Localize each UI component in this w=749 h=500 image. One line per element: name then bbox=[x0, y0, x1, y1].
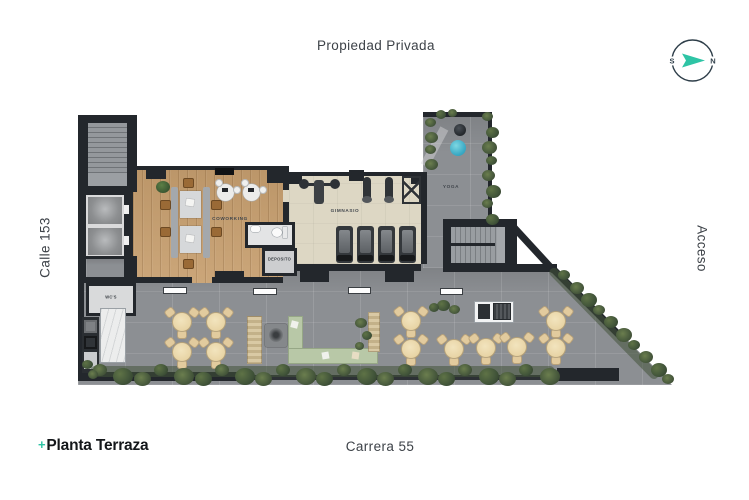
room-label-wc: WC'S bbox=[94, 296, 128, 300]
bush bbox=[425, 159, 438, 170]
column bbox=[146, 166, 166, 179]
treadmill-console bbox=[400, 255, 415, 261]
planter-bar-bottom-right bbox=[557, 368, 619, 381]
bush bbox=[418, 368, 438, 385]
spin-bike-seat bbox=[384, 196, 394, 203]
street-label-left: Calle 153 bbox=[38, 213, 53, 283]
bush bbox=[235, 368, 255, 385]
dining-table bbox=[206, 342, 226, 362]
bush bbox=[482, 170, 495, 181]
elevator-cab bbox=[88, 197, 122, 224]
bush bbox=[436, 110, 446, 119]
bush bbox=[362, 331, 372, 340]
bush bbox=[482, 199, 493, 208]
dining-set bbox=[164, 333, 200, 371]
sofa-bench bbox=[171, 187, 178, 258]
bush bbox=[215, 364, 229, 376]
compass-letter-s: S bbox=[669, 57, 674, 66]
street-label-right: Acceso bbox=[695, 219, 710, 279]
wood-chair bbox=[211, 200, 222, 210]
bush bbox=[337, 364, 351, 376]
compass-arrow-icon bbox=[682, 54, 705, 68]
skylight-bar bbox=[348, 287, 371, 294]
dining-table bbox=[444, 339, 464, 359]
toilet-tank bbox=[283, 227, 287, 238]
skylight-bar bbox=[253, 288, 277, 295]
fire-pit-bowl bbox=[269, 328, 283, 342]
compass-icon: S N bbox=[664, 32, 721, 89]
skylight-bar bbox=[163, 287, 187, 294]
wood-chair bbox=[211, 227, 222, 237]
stairwell-left-treads bbox=[88, 123, 127, 173]
treadmill-deck bbox=[402, 230, 413, 253]
gym-bench bbox=[314, 180, 324, 204]
treadmill-deck bbox=[360, 230, 371, 253]
bush bbox=[82, 360, 93, 369]
bush bbox=[558, 270, 570, 280]
planter-box bbox=[300, 271, 329, 282]
bush bbox=[448, 109, 457, 117]
cafe-chair bbox=[259, 186, 267, 194]
wood-chair bbox=[183, 178, 194, 188]
dining-table bbox=[172, 312, 192, 332]
pouf-dark bbox=[454, 124, 466, 136]
treadmill bbox=[378, 226, 395, 263]
bush bbox=[639, 351, 653, 363]
lounge-sofa-bottom bbox=[288, 348, 378, 364]
stairwell-right-landing bbox=[497, 227, 505, 263]
bbq-grill bbox=[494, 304, 510, 319]
wall-gym-yoga bbox=[421, 172, 427, 264]
street-label-bottom: Carrera 55 bbox=[320, 439, 440, 454]
bush bbox=[429, 303, 439, 312]
bush bbox=[88, 370, 98, 379]
bush bbox=[355, 318, 367, 328]
compass-letter-n: N bbox=[710, 57, 715, 66]
sink bbox=[251, 226, 260, 232]
treadmill-deck bbox=[339, 230, 350, 253]
bush bbox=[593, 305, 605, 315]
bbq-side-burner bbox=[478, 304, 490, 319]
bush bbox=[438, 372, 455, 386]
bush bbox=[355, 342, 364, 350]
bush bbox=[662, 374, 674, 384]
cafe-chair bbox=[233, 186, 241, 194]
wall-coworking-terrace bbox=[133, 277, 192, 283]
wood-chair bbox=[160, 200, 171, 210]
dining-table bbox=[401, 311, 421, 331]
cable-machine bbox=[402, 176, 421, 204]
bush bbox=[570, 282, 584, 294]
bush bbox=[628, 340, 640, 350]
treadmill-deck bbox=[381, 230, 392, 253]
laptop bbox=[222, 188, 228, 192]
room-label-storage: DEPOSITO bbox=[268, 258, 292, 262]
room-label-coworking: COWORKING bbox=[203, 217, 258, 222]
floor-plan-page: Propiedad Privada Calle 153 Acceso Carre… bbox=[0, 0, 749, 500]
bush bbox=[357, 368, 377, 385]
street-label-top: Propiedad Privada bbox=[317, 38, 435, 53]
fire-pit bbox=[265, 324, 287, 347]
deck-bench bbox=[247, 316, 262, 364]
elevator-cab bbox=[88, 228, 122, 255]
toilet bbox=[272, 228, 282, 237]
dining-set bbox=[393, 330, 429, 368]
door-gap bbox=[283, 190, 289, 202]
dining-set bbox=[436, 330, 472, 368]
bush bbox=[425, 118, 436, 127]
bush bbox=[482, 112, 493, 121]
pouf-teal bbox=[450, 140, 466, 156]
bush bbox=[479, 368, 499, 385]
planter-box bbox=[385, 271, 414, 282]
kitchen-counter bbox=[100, 308, 126, 363]
bush bbox=[134, 372, 151, 386]
plan-title-text: Planta Terraza bbox=[46, 437, 148, 454]
dining-table bbox=[476, 338, 496, 358]
bush bbox=[540, 368, 560, 385]
cafe-chair bbox=[241, 179, 249, 187]
bush bbox=[449, 305, 460, 314]
treadmill-console bbox=[379, 255, 394, 261]
sofa-bench bbox=[203, 187, 210, 258]
elevator-door-gap bbox=[124, 236, 129, 245]
spin-bike-seat bbox=[362, 196, 372, 203]
treadmill-console bbox=[358, 255, 373, 261]
treadmill bbox=[336, 226, 353, 263]
bush bbox=[425, 132, 438, 143]
bush bbox=[154, 364, 168, 376]
treadmill bbox=[357, 226, 374, 263]
laptop bbox=[248, 188, 254, 192]
room-label-yoga: YOGA bbox=[439, 185, 462, 190]
tv-screen bbox=[215, 168, 234, 175]
treadmill-console bbox=[337, 255, 352, 261]
wood-chair bbox=[160, 227, 171, 237]
stairwell-left-landing bbox=[88, 173, 127, 186]
wall-stair-bottom bbox=[443, 264, 557, 272]
stove bbox=[84, 336, 97, 349]
dining-set bbox=[499, 328, 535, 366]
dining-table bbox=[546, 338, 566, 358]
cafe-chair bbox=[215, 179, 223, 187]
kitchen-sink bbox=[84, 320, 97, 333]
dining-table bbox=[206, 312, 226, 332]
bush bbox=[425, 145, 436, 154]
sofa-pillow bbox=[321, 351, 329, 359]
weight-plate bbox=[299, 179, 309, 189]
room-label-gym: GIMNASIO bbox=[318, 209, 373, 214]
wall-gym-terrace bbox=[287, 264, 421, 271]
bush bbox=[486, 214, 499, 225]
bush bbox=[499, 372, 516, 386]
bush bbox=[486, 127, 499, 138]
paper-sheet bbox=[186, 198, 195, 206]
plan-title-plus-icon: + bbox=[38, 437, 45, 452]
dining-table bbox=[546, 311, 566, 331]
weight-plate bbox=[330, 179, 340, 189]
dining-table bbox=[401, 339, 421, 359]
potted-plant bbox=[156, 181, 170, 193]
paper-sheet bbox=[186, 234, 195, 242]
skylight-bar bbox=[440, 288, 463, 295]
stairwell-right-divider bbox=[451, 243, 495, 246]
wood-chair bbox=[183, 259, 194, 269]
bush bbox=[486, 185, 501, 198]
dining-set bbox=[538, 329, 574, 367]
column bbox=[349, 170, 364, 181]
bush bbox=[195, 372, 212, 386]
planter-box bbox=[215, 271, 244, 282]
treadmill bbox=[399, 226, 416, 263]
bush bbox=[296, 368, 316, 385]
bush bbox=[276, 364, 290, 376]
bush bbox=[482, 141, 497, 154]
plan-title: +Planta Terraza bbox=[38, 437, 148, 455]
elevator-door-gap bbox=[124, 205, 129, 214]
dining-table bbox=[172, 342, 192, 362]
bush bbox=[486, 156, 497, 165]
bush bbox=[398, 364, 412, 376]
sofa-pillow bbox=[352, 352, 360, 360]
dining-table bbox=[507, 337, 527, 357]
